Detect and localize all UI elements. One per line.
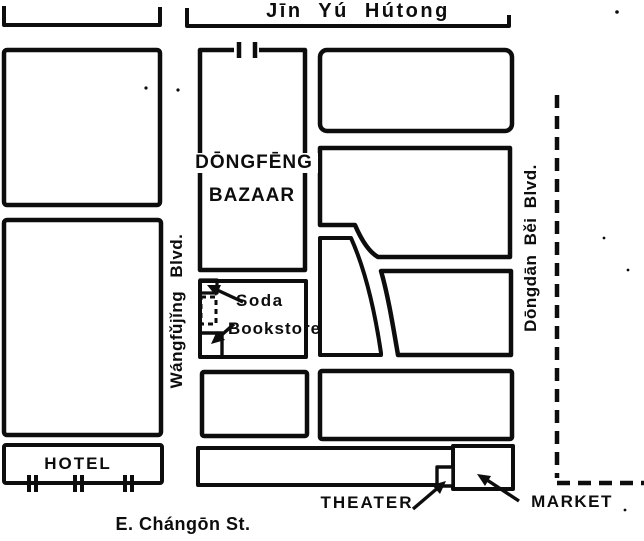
bookstore-label: Bookstore (228, 319, 338, 339)
hotel-label: HOTEL (26, 454, 130, 474)
theater-label: THEATER (315, 493, 419, 513)
street-label-dongdan: Dōngdān Běi Blvd. (521, 143, 541, 353)
street-map: Jīn Yú Hútong DŌNGFĒNG BAZAAR Wángfǔjǐng… (0, 0, 644, 541)
city-block-east-south (320, 371, 512, 439)
bazaar-name-label: DŌNGFĒNG (190, 153, 318, 173)
market-label: MARKET (524, 492, 620, 512)
city-block-mid-south (202, 372, 307, 436)
city-block-west-south (4, 220, 161, 435)
street-label-changan: E. Chángōn St. (103, 514, 263, 534)
street-label-jin-yu-hutong: Jīn Yú Hútong (238, 1, 478, 21)
street-label-wangfujing: Wángfǔjǐng Blvd. (167, 226, 187, 396)
dashed-stall-square (201, 297, 216, 324)
street-edge-top-left (4, 6, 160, 25)
bazaar-gate-marks (239, 42, 255, 58)
city-block-east-notched (320, 148, 510, 257)
city-block-diagonal-east (381, 271, 511, 355)
soda-label: Soda (236, 291, 296, 311)
city-block-east-north (320, 50, 512, 131)
pointer-arrowheads (207, 285, 491, 494)
bazaar-type-label: BAZAAR (198, 186, 306, 206)
city-block-west-north (4, 50, 160, 205)
